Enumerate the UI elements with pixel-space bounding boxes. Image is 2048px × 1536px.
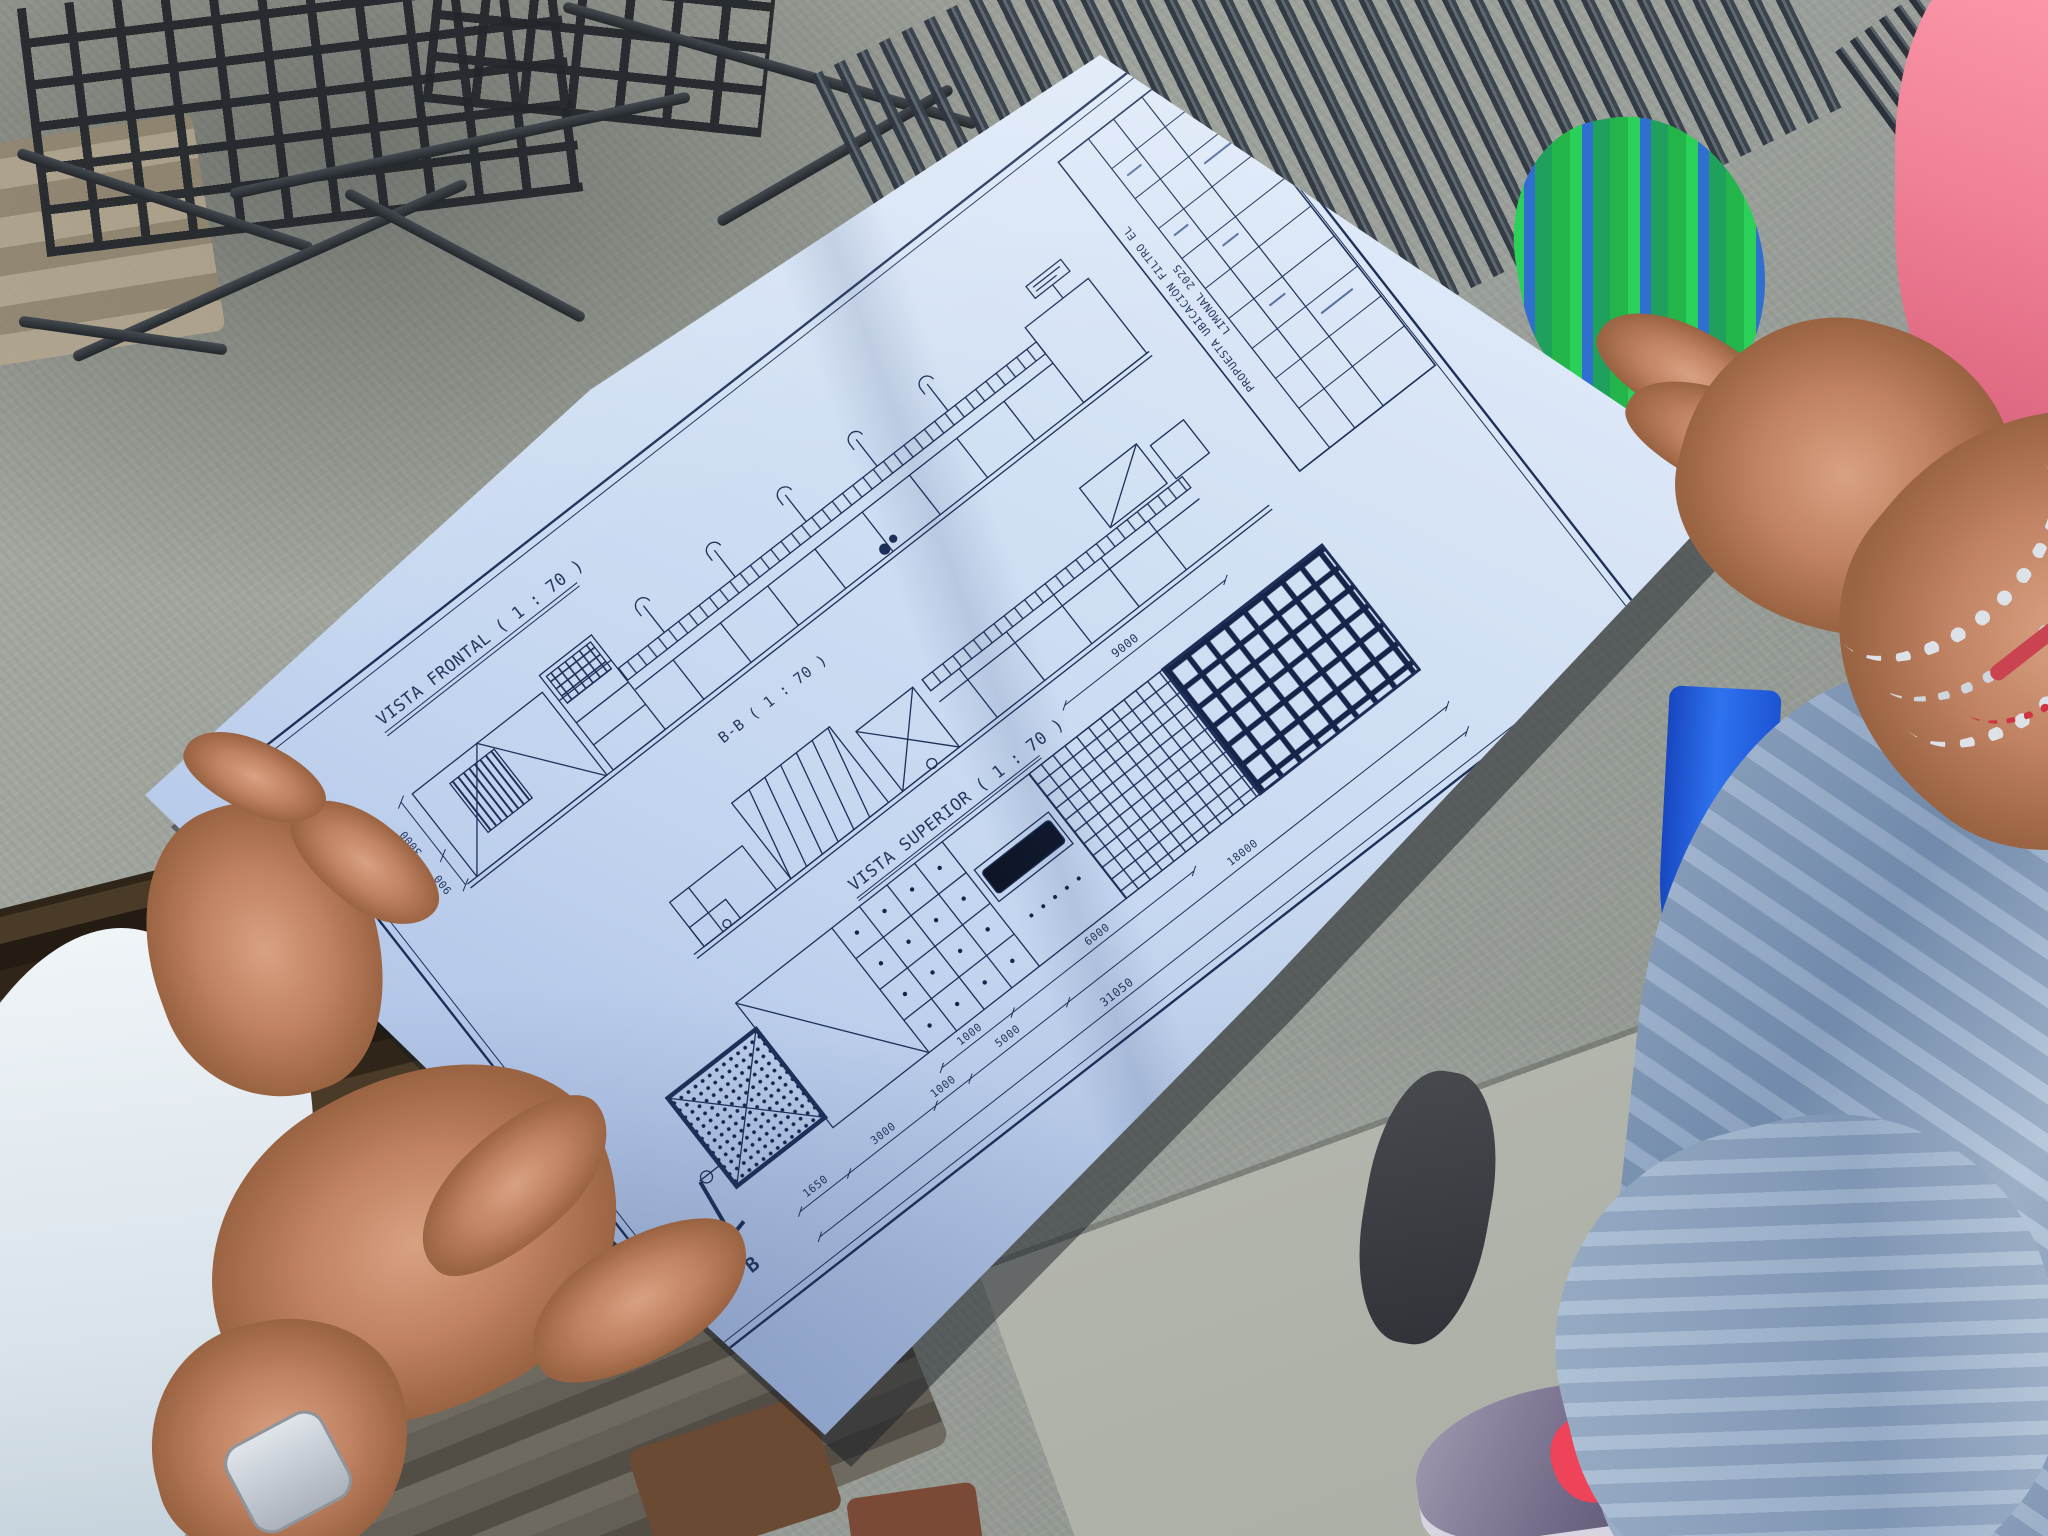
front-view-label: VISTA FRONTAL ( 1 : 70 ) — [373, 556, 588, 730]
dim-chain-1: 1650 — [800, 1172, 830, 1200]
title-block-line1: PROPUESTA UBICACIÓN FILTRO EL — [1120, 224, 1257, 395]
dim-chain-2: 3000 — [868, 1120, 898, 1148]
dim-mid-2: 6000 — [1082, 921, 1112, 949]
dim-top-width: 9000 — [1109, 631, 1142, 661]
dim-chain-4: 5000 — [992, 1022, 1022, 1050]
front-view-label-group: VISTA FRONTAL ( 1 : 70 ) — [371, 556, 592, 736]
dim-mid-1: 1000 — [954, 1020, 984, 1048]
dim-chain-3: 1000 — [928, 1073, 958, 1101]
top-view-label: VISTA SUPERIOR ( 1 : 70 ) — [845, 715, 1069, 896]
dim-chain-5: 18000 — [1224, 837, 1260, 869]
construction-site-photo: 3000 900 VISTA FRONTAL ( 1 : 70 ) B-B ( … — [0, 0, 2048, 1536]
section-view-label: B-B ( 1 : 70 ) — [715, 651, 831, 747]
